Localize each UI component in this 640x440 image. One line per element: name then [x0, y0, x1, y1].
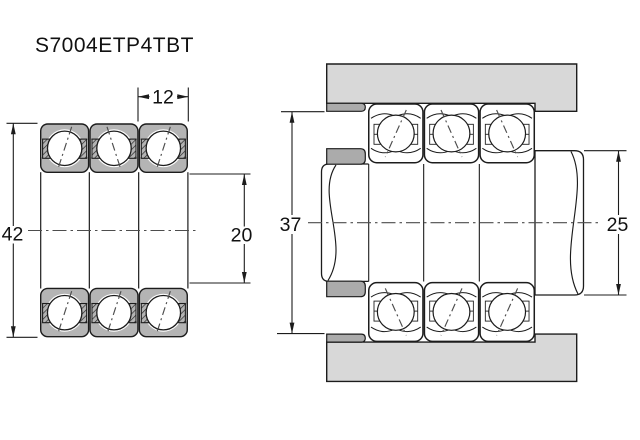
- dim-label-20: 20: [231, 225, 253, 247]
- dimension-width: 12: [138, 86, 188, 121]
- dim-label-42: 42: [2, 224, 24, 246]
- dim-label-25: 25: [607, 214, 629, 236]
- dim-label-12: 12: [152, 86, 174, 108]
- shaft-spacer-top: [327, 149, 366, 165]
- bearing-cell: [369, 283, 423, 342]
- drawing-svg: S7004ETP4TBT 42: [0, 0, 640, 440]
- bearing-cell: [480, 283, 534, 342]
- bearing-technical-drawing: S7004ETP4TBT 42: [0, 0, 640, 440]
- part-number-title: S7004ETP4TBT: [35, 34, 194, 57]
- dim-label-37: 37: [280, 214, 302, 236]
- dimension-bore: 20: [190, 174, 253, 283]
- shaft-spacer-bottom: [327, 281, 366, 297]
- bearing-cell: [480, 104, 534, 163]
- housing-spacer-bottom: [327, 334, 366, 342]
- right-view-mounted-arrangement: 37 25: [277, 64, 628, 381]
- housing-spacer-top: [327, 103, 366, 111]
- bearing-cell: [424, 283, 478, 342]
- bearing-cell: [369, 104, 423, 163]
- bearing-cell: [424, 104, 478, 163]
- left-view-bearing-set: 42 12 20: [2, 86, 253, 337]
